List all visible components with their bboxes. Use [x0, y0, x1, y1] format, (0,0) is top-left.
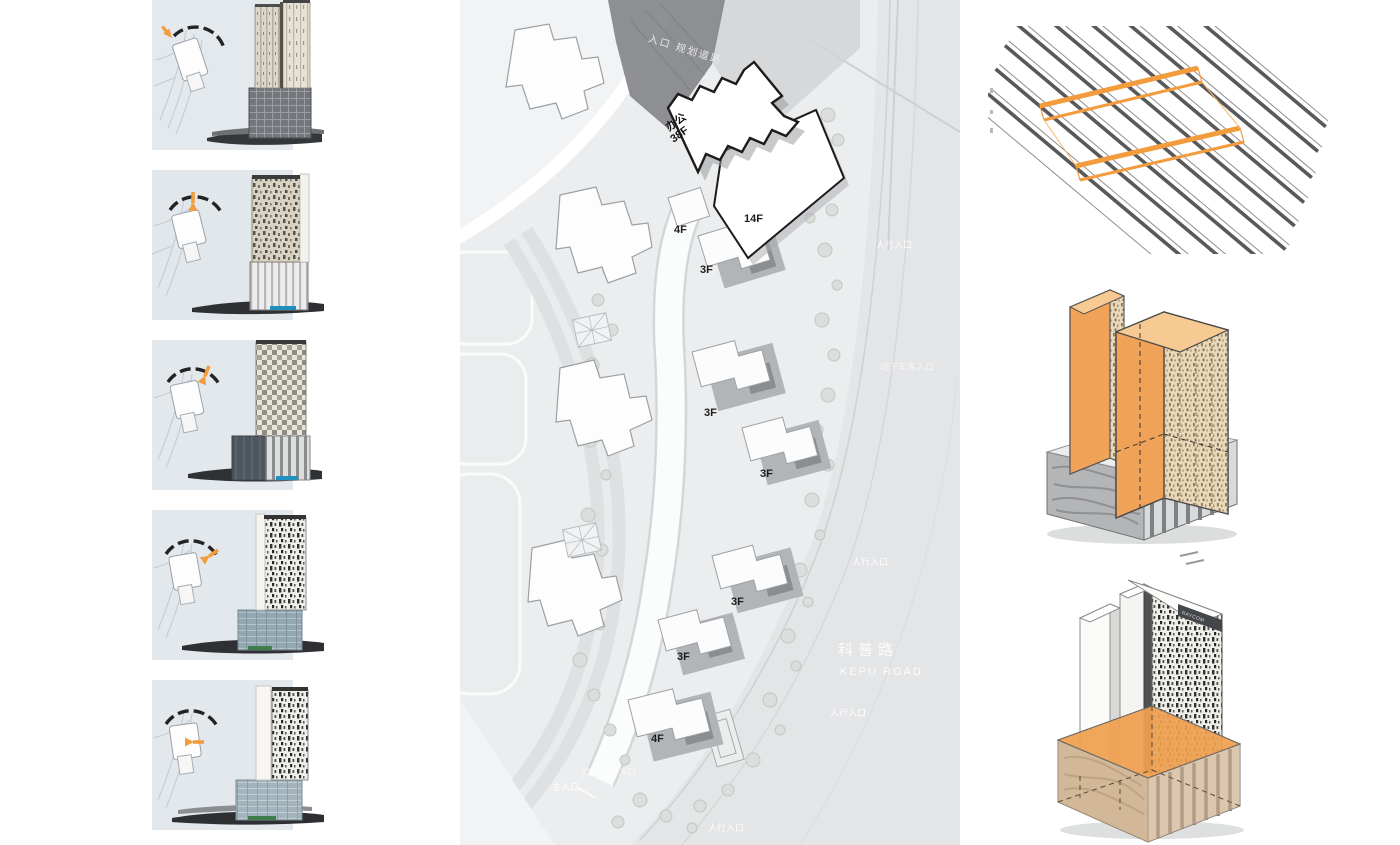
road-name-cn: 科普路 — [838, 642, 898, 659]
entrance-garage-2: 地下车库入口 — [582, 766, 636, 777]
entrance-main: 主入口 — [552, 781, 579, 792]
tower-slabs-axon — [1032, 262, 1262, 552]
podium-volume-axon: RAYCOM — [1040, 548, 1270, 845]
orange-slab-front — [1116, 312, 1228, 518]
road-name-en: KEPU ROAD — [840, 666, 923, 678]
presentation-sheet: 办公 38F 14F 4F 3F 3F 3F 3F 3F 4F 入口 规划道路 … — [0, 0, 1400, 845]
floor-label-14f: 14F — [744, 213, 763, 225]
entrance-garage-1: 地下车库入口 — [880, 361, 934, 372]
entrance-pedestrian-1: 人行入口 — [876, 239, 912, 250]
massing-step-4 — [152, 510, 327, 660]
floor-label-4f-top: 4F — [674, 224, 687, 236]
concept-diagrams-panel: RAYCOM — [960, 0, 1400, 845]
massing-step-1 — [152, 0, 327, 150]
entrance-pedestrian-3: 人行入口 — [830, 707, 866, 718]
tick-marks — [1180, 552, 1204, 564]
site-plan: 办公 38F 14F 4F 3F 3F 3F 3F 3F 4F 入口 规划道路 … — [460, 0, 960, 845]
floor-label-3f-2: 3F — [704, 407, 717, 419]
floor-label-3f-1: 3F — [700, 264, 713, 276]
floor-label-4f-bottom: 4F — [651, 733, 664, 745]
massing-step-5 — [152, 680, 327, 830]
floor-label-3f-4: 3F — [731, 596, 744, 608]
entrance-pedestrian-2: 人行入口 — [852, 556, 888, 567]
massing-step-3 — [152, 340, 327, 490]
massing-iterations-panel — [152, 0, 327, 845]
facade-plank-pattern-diagram — [988, 26, 1328, 254]
entrance-pedestrian-4: 人行入口 — [708, 822, 744, 833]
floor-label-3f-5: 3F — [677, 651, 690, 663]
plank-lines — [988, 26, 1328, 254]
massing-step-2 — [152, 170, 327, 320]
floor-label-3f-3: 3F — [760, 468, 773, 480]
